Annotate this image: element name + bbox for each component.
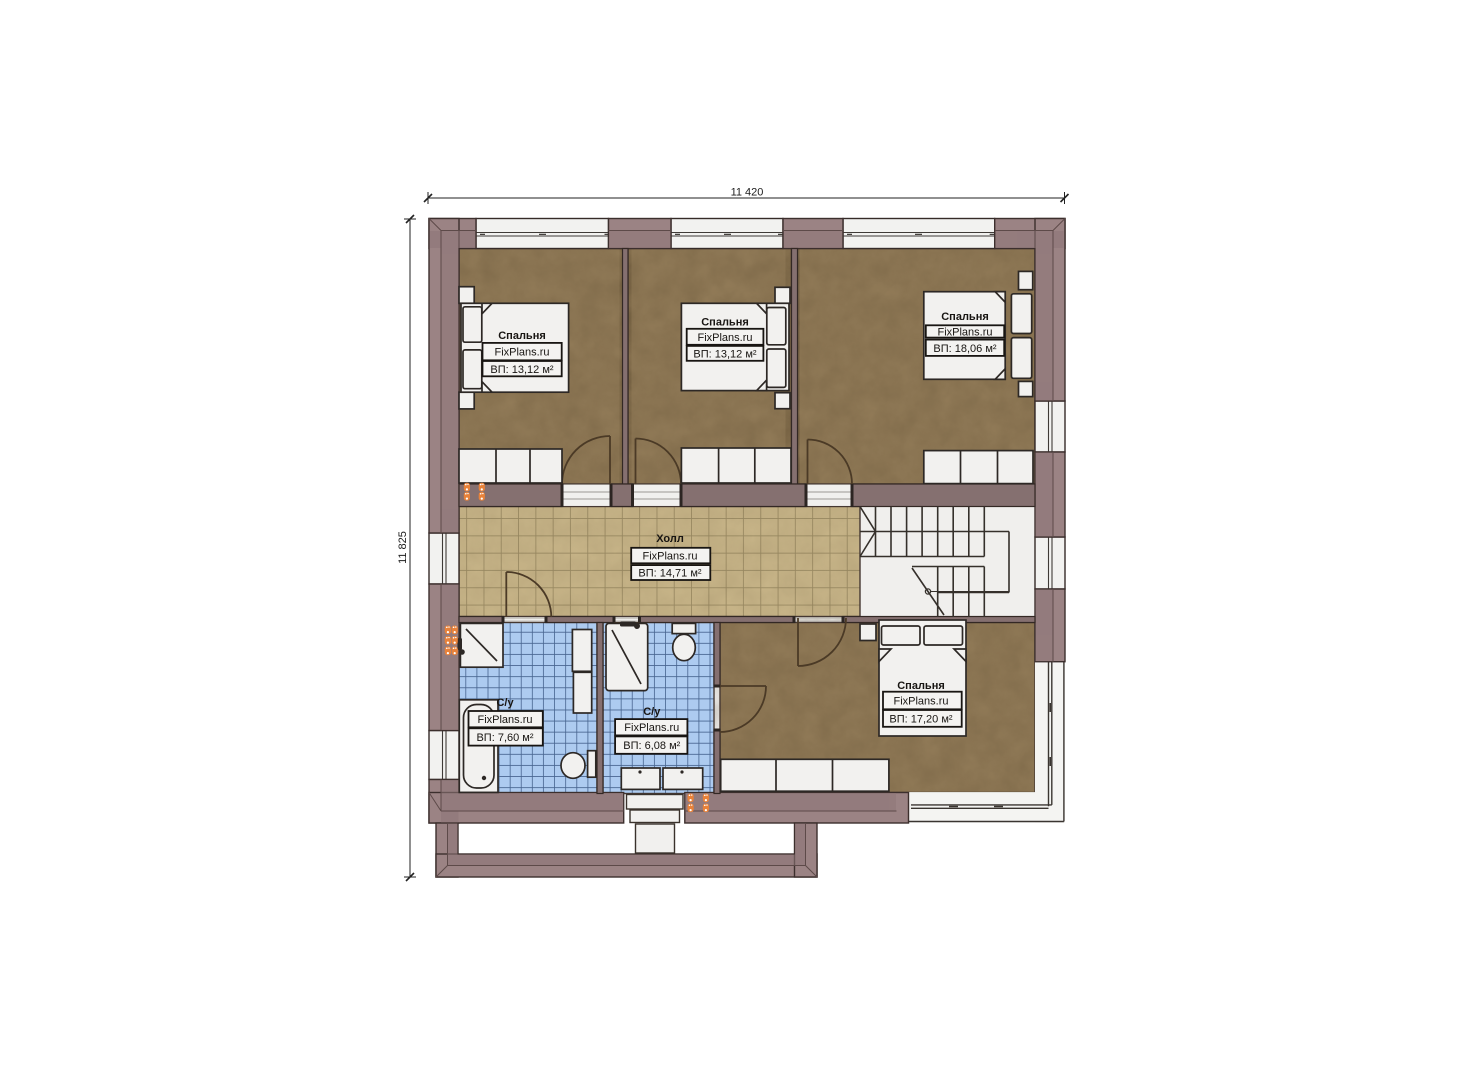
svg-text:FixPlans.ru: FixPlans.ru bbox=[937, 326, 992, 338]
svg-text:Спальня: Спальня bbox=[498, 330, 546, 342]
svg-text:ВП: 7,60 м²: ВП: 7,60 м² bbox=[476, 732, 533, 744]
svg-text:ВП: 6,08 м²: ВП: 6,08 м² bbox=[623, 740, 680, 752]
svg-text:11 420: 11 420 bbox=[731, 187, 764, 199]
svg-text:Холл: Холл bbox=[656, 533, 684, 545]
svg-text:FixPlans.ru: FixPlans.ru bbox=[494, 347, 549, 359]
svg-text:Спальня: Спальня bbox=[701, 316, 749, 328]
svg-text:ВП: 14,71 м²: ВП: 14,71 м² bbox=[638, 568, 702, 580]
svg-text:FixPlans.ru: FixPlans.ru bbox=[642, 551, 697, 563]
svg-text:С/у: С/у bbox=[643, 706, 661, 718]
svg-text:FixPlans.ru: FixPlans.ru bbox=[477, 714, 532, 726]
svg-text:FixPlans.ru: FixPlans.ru bbox=[893, 696, 948, 708]
svg-text:Спальня: Спальня bbox=[941, 311, 989, 323]
svg-text:ВП: 13,12 м²: ВП: 13,12 м² bbox=[490, 364, 554, 376]
svg-text:ВП: 17,20 м²: ВП: 17,20 м² bbox=[889, 714, 953, 726]
svg-text:FixPlans.ru: FixPlans.ru bbox=[697, 332, 752, 344]
svg-text:ВП: 13,12 м²: ВП: 13,12 м² bbox=[693, 348, 757, 360]
svg-text:FixPlans.ru: FixPlans.ru bbox=[624, 722, 679, 734]
svg-text:11 825: 11 825 bbox=[397, 531, 409, 564]
svg-text:ВП: 18,06 м²: ВП: 18,06 м² bbox=[933, 343, 997, 355]
svg-text:Спальня: Спальня bbox=[897, 680, 945, 692]
svg-text:С/у: С/у bbox=[496, 697, 514, 709]
